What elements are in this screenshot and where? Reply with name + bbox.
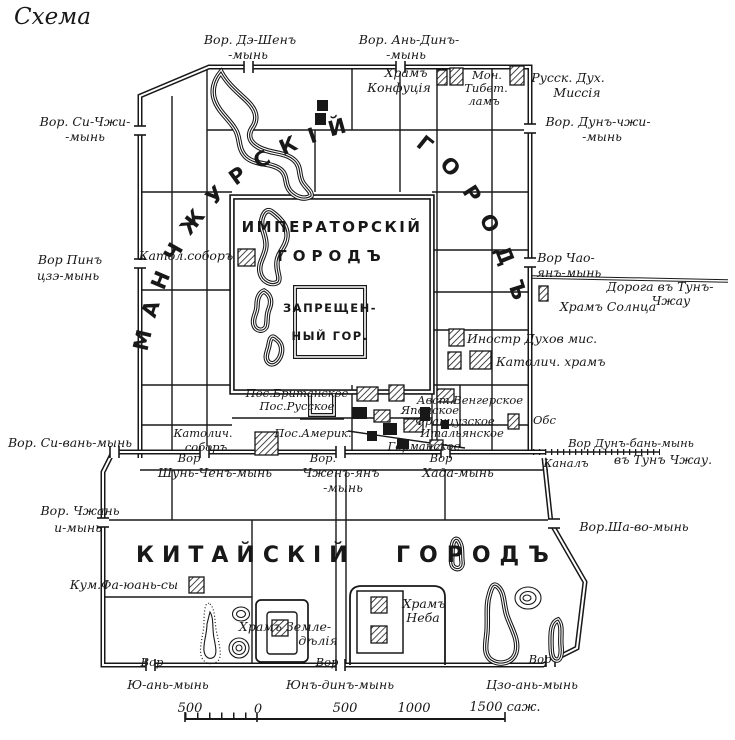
road-tun-chzhau-label: Дорога въ Тунъ- bbox=[606, 279, 714, 294]
catholic-temple-label: Католич. храмъ bbox=[495, 354, 605, 369]
mound-contour bbox=[204, 612, 216, 658]
gate-dun-chzhi-label: Вор. Дунъ-чжи- bbox=[544, 114, 650, 129]
gate-de-shen-label: Вор. Дэ-Шенъ bbox=[203, 32, 296, 47]
mound-spiral-mid bbox=[233, 642, 246, 655]
scale-500-mid: 500 bbox=[333, 701, 358, 716]
gate-yu-an-label2: Ю-ань-мынь bbox=[126, 677, 209, 692]
gate-shun-chen-label: Вор bbox=[177, 451, 201, 465]
catholic-cathedral-west-label: Катол.соборъ bbox=[138, 248, 233, 263]
russian-legation-label: Пос.Русское bbox=[259, 399, 335, 413]
heaven-temple-label2: Неба bbox=[405, 610, 439, 625]
gate-yu-an-label: Вор bbox=[140, 655, 164, 669]
gate-chao-yan-label: Вор Чао- bbox=[536, 250, 595, 265]
wall-outline bbox=[295, 287, 365, 357]
sun-temple-building bbox=[539, 286, 548, 301]
gate-yun-din-label: Вор bbox=[315, 655, 339, 669]
gate-de-shen bbox=[244, 61, 253, 73]
gate-si-chzhi bbox=[134, 126, 146, 135]
fayuansy-building bbox=[189, 577, 204, 593]
agriculture-temple-label2: дѣлія bbox=[298, 633, 337, 648]
gate-an-din-label: Вор. Ань-Динъ- bbox=[358, 32, 459, 47]
gate-chao-yan bbox=[524, 258, 536, 267]
legation-block bbox=[383, 423, 397, 435]
forbidden-city-name-line2: НЫЙ ГОР. bbox=[291, 328, 368, 343]
building-block bbox=[317, 100, 328, 111]
gate-sha-vo-label: Вор.Ша-во-мынь bbox=[578, 519, 688, 534]
temple-building-south bbox=[371, 626, 387, 643]
legation-block bbox=[367, 431, 377, 441]
to-tun-chzhau-label: въ Тунъ Чжау. bbox=[614, 452, 712, 467]
gate-khada-label: Вор bbox=[429, 451, 453, 465]
gate-chzhen-yan-label2: Чженъ-янъ bbox=[303, 465, 380, 480]
tibet-monastery-building-2 bbox=[510, 66, 524, 85]
forbidden-city-wall bbox=[295, 287, 365, 357]
tibet-monastery-label: Мон. bbox=[471, 68, 502, 82]
gate-an-din-label2: -мынь bbox=[386, 47, 426, 62]
gate-si-chzhi-label2: -мынь bbox=[65, 129, 105, 144]
mound-se-small bbox=[551, 620, 561, 660]
canal-label: Каналъ bbox=[542, 456, 589, 470]
gate-chao-yan-label2: янъ-мынь bbox=[537, 265, 602, 280]
gate-dun-ban-label: Вор Дунъ-бань-мынь bbox=[567, 436, 694, 450]
mound-oval-inner bbox=[237, 611, 246, 618]
legation-building-1 bbox=[357, 387, 378, 401]
chinese-city-name-line1: КИТАЙСКІЙ bbox=[136, 542, 356, 568]
gate-shun-chen-label2: Шунь-Ченъ-мынь bbox=[157, 465, 272, 480]
wall-inner bbox=[295, 287, 365, 357]
legation-building-2 bbox=[389, 385, 404, 401]
imperial-lake-south bbox=[266, 337, 281, 364]
italian-legation-label: Итальянское bbox=[419, 426, 504, 440]
mound-round-mid bbox=[520, 592, 536, 605]
gate-yun-din-label2: Юнъ-динъ-мынь bbox=[285, 677, 394, 692]
forbidden-city-name-line1: ЗАПРЕЩЕН- bbox=[283, 301, 377, 315]
gate-chzhen-yan-label3: -мынь bbox=[323, 480, 363, 495]
foreign-missions-label: Иностр Духов мис. bbox=[466, 331, 597, 346]
russian-mission-label2: Миссія bbox=[552, 85, 600, 100]
gate-chzhan-i-label2: и-мынь bbox=[54, 520, 102, 535]
gate-si-chzhi-label: Вор. Си-Чжи- bbox=[39, 114, 131, 129]
foreign-missions-building bbox=[449, 329, 464, 346]
gate-si-van-label: Вор. Си-вань-мынь bbox=[7, 435, 132, 450]
map-canvas: Схема bbox=[0, 0, 735, 740]
chinese-city-name-line2: ГОРОДЪ bbox=[396, 543, 558, 568]
road-tun-chzhau-label2: Чжау bbox=[652, 293, 691, 308]
temple-building-north bbox=[371, 597, 387, 613]
sun-temple-label: Храмъ Солнца bbox=[559, 299, 656, 314]
tibet-monastery-label2: Тибет. bbox=[464, 81, 507, 95]
observatory-building bbox=[508, 414, 519, 429]
mound-se-big bbox=[486, 585, 517, 663]
gate-chzhan-i-label: Вор. Чжань bbox=[39, 503, 119, 518]
tibet-monastery-building-1 bbox=[450, 68, 463, 85]
gate-chzhen-yan bbox=[336, 446, 345, 458]
page-title: Схема bbox=[14, 4, 91, 30]
imperial-city-name-line1: ИМПЕРАТОРСКІЙ bbox=[242, 217, 423, 236]
fayuansy-label: Кум.Фа-юань-сы bbox=[69, 577, 178, 592]
confucius-temple-label: Храмъ bbox=[383, 65, 427, 80]
russian-mission-label: Русск. Дух. bbox=[530, 70, 605, 85]
tibet-monastery-label3: ламъ bbox=[468, 94, 500, 108]
gate-tszo-an-label: Вор bbox=[528, 652, 552, 666]
gate-pin-tsze-label: Вор Пинъ bbox=[37, 252, 102, 267]
confucius-temple-building bbox=[437, 70, 447, 85]
heaven-temple-label: Храмъ bbox=[401, 596, 445, 611]
scale-bar: 500 0 500 1000 1500 саж. bbox=[178, 700, 541, 722]
catholic-cathedral-west-building bbox=[238, 249, 255, 266]
gate-dun-chzhi bbox=[524, 124, 536, 133]
gate-de-shen-label2: -мынь bbox=[228, 47, 268, 62]
observatory-label: Обс bbox=[533, 413, 556, 427]
street bbox=[140, 290, 530, 292]
imperial-lake-middle bbox=[254, 291, 271, 330]
scale-0: 0 bbox=[254, 702, 262, 717]
mound-spiral-inner bbox=[236, 645, 242, 651]
mound-round-outer bbox=[515, 587, 541, 609]
catholic-cathedral-south-label: Католич. bbox=[172, 426, 232, 440]
legation-block bbox=[352, 407, 367, 419]
gate-chzhen-yan-label: Вор. bbox=[309, 451, 336, 465]
mound-round-inner bbox=[523, 595, 531, 601]
confucius-temple-label2: Конфуція bbox=[366, 80, 430, 95]
legation-building-3 bbox=[374, 410, 390, 422]
scale-500-left: 500 bbox=[178, 701, 203, 716]
american-legation-label: Пос.Америк. bbox=[273, 426, 351, 440]
gate-tszo-an-label2: Цзо-ань-мынь bbox=[486, 677, 578, 692]
catholic-temple-building-1 bbox=[448, 352, 461, 369]
gate-dun-chzhi-label2: -мынь bbox=[582, 129, 622, 144]
agriculture-temple-label: Храмъ Земле- bbox=[238, 619, 331, 634]
gate-khada-label2: Хада-мынь bbox=[421, 465, 494, 480]
scale-1000: 1000 bbox=[397, 701, 430, 716]
imperial-city-name-line2: ГОРОДЪ bbox=[277, 247, 387, 265]
catholic-temple-building-2 bbox=[470, 351, 491, 369]
british-legation-label: Пос.Британское bbox=[245, 386, 349, 400]
gate-pin-tsze-label2: цзэ-мынь bbox=[37, 268, 100, 283]
gate-sha-vo bbox=[548, 519, 560, 528]
